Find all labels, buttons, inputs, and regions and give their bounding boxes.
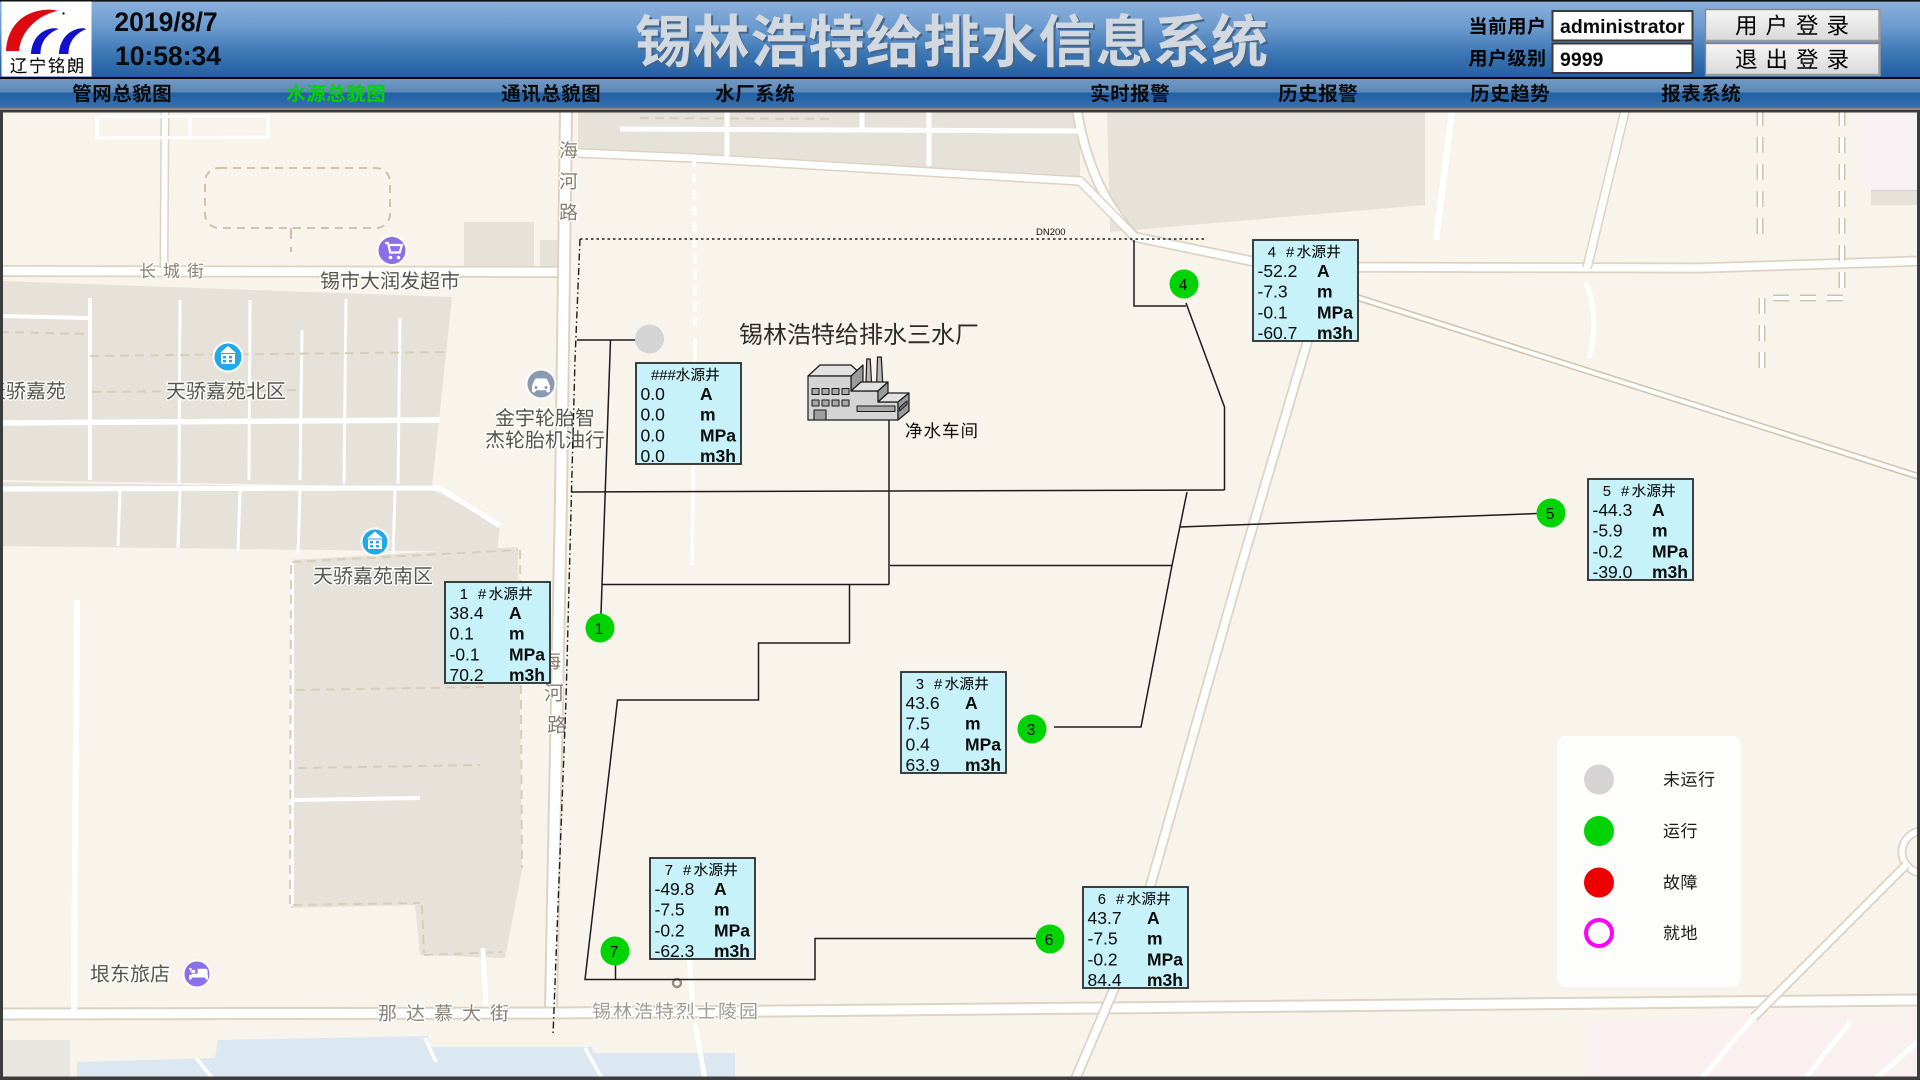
svg-text:m3h: m3h: [1317, 323, 1353, 343]
svg-text:-52.2: -52.2: [1258, 261, 1298, 281]
svg-text:m3h: m3h: [965, 755, 1001, 775]
svg-text:MPa: MPa: [1652, 541, 1688, 561]
svg-text:-49.8: -49.8: [655, 879, 695, 899]
svg-text:#: #: [934, 677, 943, 693]
svg-text:m: m: [714, 900, 730, 920]
svg-text:7.5: 7.5: [906, 714, 930, 734]
svg-text:0.0: 0.0: [641, 446, 666, 466]
svg-text:m: m: [1317, 282, 1333, 302]
svg-text:-62.3: -62.3: [655, 941, 695, 961]
svg-text:38.4: 38.4: [450, 603, 484, 623]
svg-text:A: A: [1317, 261, 1330, 281]
svg-text:-0.2: -0.2: [655, 920, 685, 940]
svg-text:MPa: MPa: [509, 644, 545, 664]
svg-text:7: 7: [610, 944, 619, 961]
svg-text:3: 3: [916, 677, 924, 693]
svg-text:A: A: [965, 693, 978, 713]
svg-text:5: 5: [1603, 484, 1611, 500]
svg-text:#: #: [1116, 892, 1125, 908]
svg-text:-60.7: -60.7: [1258, 323, 1298, 343]
svg-text:MPa: MPa: [1147, 949, 1183, 969]
svg-text:-5.9: -5.9: [1593, 521, 1623, 541]
svg-text:DN200: DN200: [1036, 227, 1066, 238]
svg-text:A: A: [714, 879, 727, 899]
svg-text:1: 1: [460, 587, 468, 603]
svg-text:0.0: 0.0: [641, 384, 666, 404]
svg-text:MPa: MPa: [965, 734, 1001, 754]
svg-text:-0.2: -0.2: [1088, 949, 1118, 969]
svg-text:m3h: m3h: [700, 446, 736, 466]
svg-text:0.0: 0.0: [641, 425, 666, 445]
svg-text:A: A: [509, 603, 522, 623]
svg-text:m3h: m3h: [1147, 970, 1183, 990]
svg-text:A: A: [1652, 500, 1665, 520]
svg-text:-7.5: -7.5: [1088, 929, 1118, 949]
svg-text:-7.5: -7.5: [655, 900, 685, 920]
svg-text:A: A: [700, 384, 713, 404]
svg-text:6: 6: [1098, 892, 1106, 908]
svg-text:###: ###: [651, 368, 676, 384]
svg-text:-44.3: -44.3: [1593, 500, 1633, 520]
svg-text:-39.0: -39.0: [1593, 562, 1633, 582]
svg-text:10:58:34: 10:58:34: [115, 41, 221, 71]
svg-text:7: 7: [665, 863, 673, 879]
svg-text:43.6: 43.6: [906, 693, 940, 713]
svg-text:m: m: [509, 624, 525, 644]
svg-text:m3h: m3h: [1652, 562, 1688, 582]
svg-text:m: m: [1147, 929, 1163, 949]
svg-text:84.4: 84.4: [1088, 970, 1122, 990]
svg-text:1: 1: [595, 621, 604, 638]
svg-text:#: #: [683, 863, 692, 879]
svg-text:70.2: 70.2: [450, 665, 484, 685]
svg-text:MPa: MPa: [714, 920, 750, 940]
svg-text:#: #: [478, 587, 487, 603]
svg-text:MPa: MPa: [700, 425, 736, 445]
svg-text:A: A: [1147, 908, 1160, 928]
svg-text:4: 4: [1179, 277, 1188, 294]
svg-text:m: m: [965, 714, 981, 734]
svg-text:#: #: [1621, 484, 1630, 500]
svg-text:0.4: 0.4: [906, 734, 931, 754]
svg-text:-7.3: -7.3: [1258, 282, 1288, 302]
svg-text:-0.2: -0.2: [1593, 541, 1623, 561]
svg-text:2019/8/7: 2019/8/7: [114, 7, 217, 37]
svg-text:6: 6: [1045, 932, 1054, 949]
svg-text:5: 5: [1546, 506, 1555, 523]
svg-text:m: m: [1652, 521, 1668, 541]
svg-text:4: 4: [1268, 245, 1276, 261]
svg-text:m3h: m3h: [509, 665, 545, 685]
svg-text:0.0: 0.0: [641, 405, 666, 425]
svg-text:-0.1: -0.1: [450, 644, 480, 664]
svg-text:#: #: [1286, 245, 1295, 261]
svg-text:m3h: m3h: [714, 941, 750, 961]
svg-text:administrator: administrator: [1560, 16, 1685, 38]
svg-text:9999: 9999: [1560, 49, 1604, 71]
svg-text:3: 3: [1027, 722, 1036, 739]
svg-text:m: m: [700, 405, 716, 425]
svg-text:MPa: MPa: [1317, 302, 1353, 322]
svg-text:0.1: 0.1: [450, 624, 474, 644]
svg-text:-0.1: -0.1: [1258, 302, 1288, 322]
svg-text:43.7: 43.7: [1088, 908, 1122, 928]
svg-text:63.9: 63.9: [906, 755, 940, 775]
